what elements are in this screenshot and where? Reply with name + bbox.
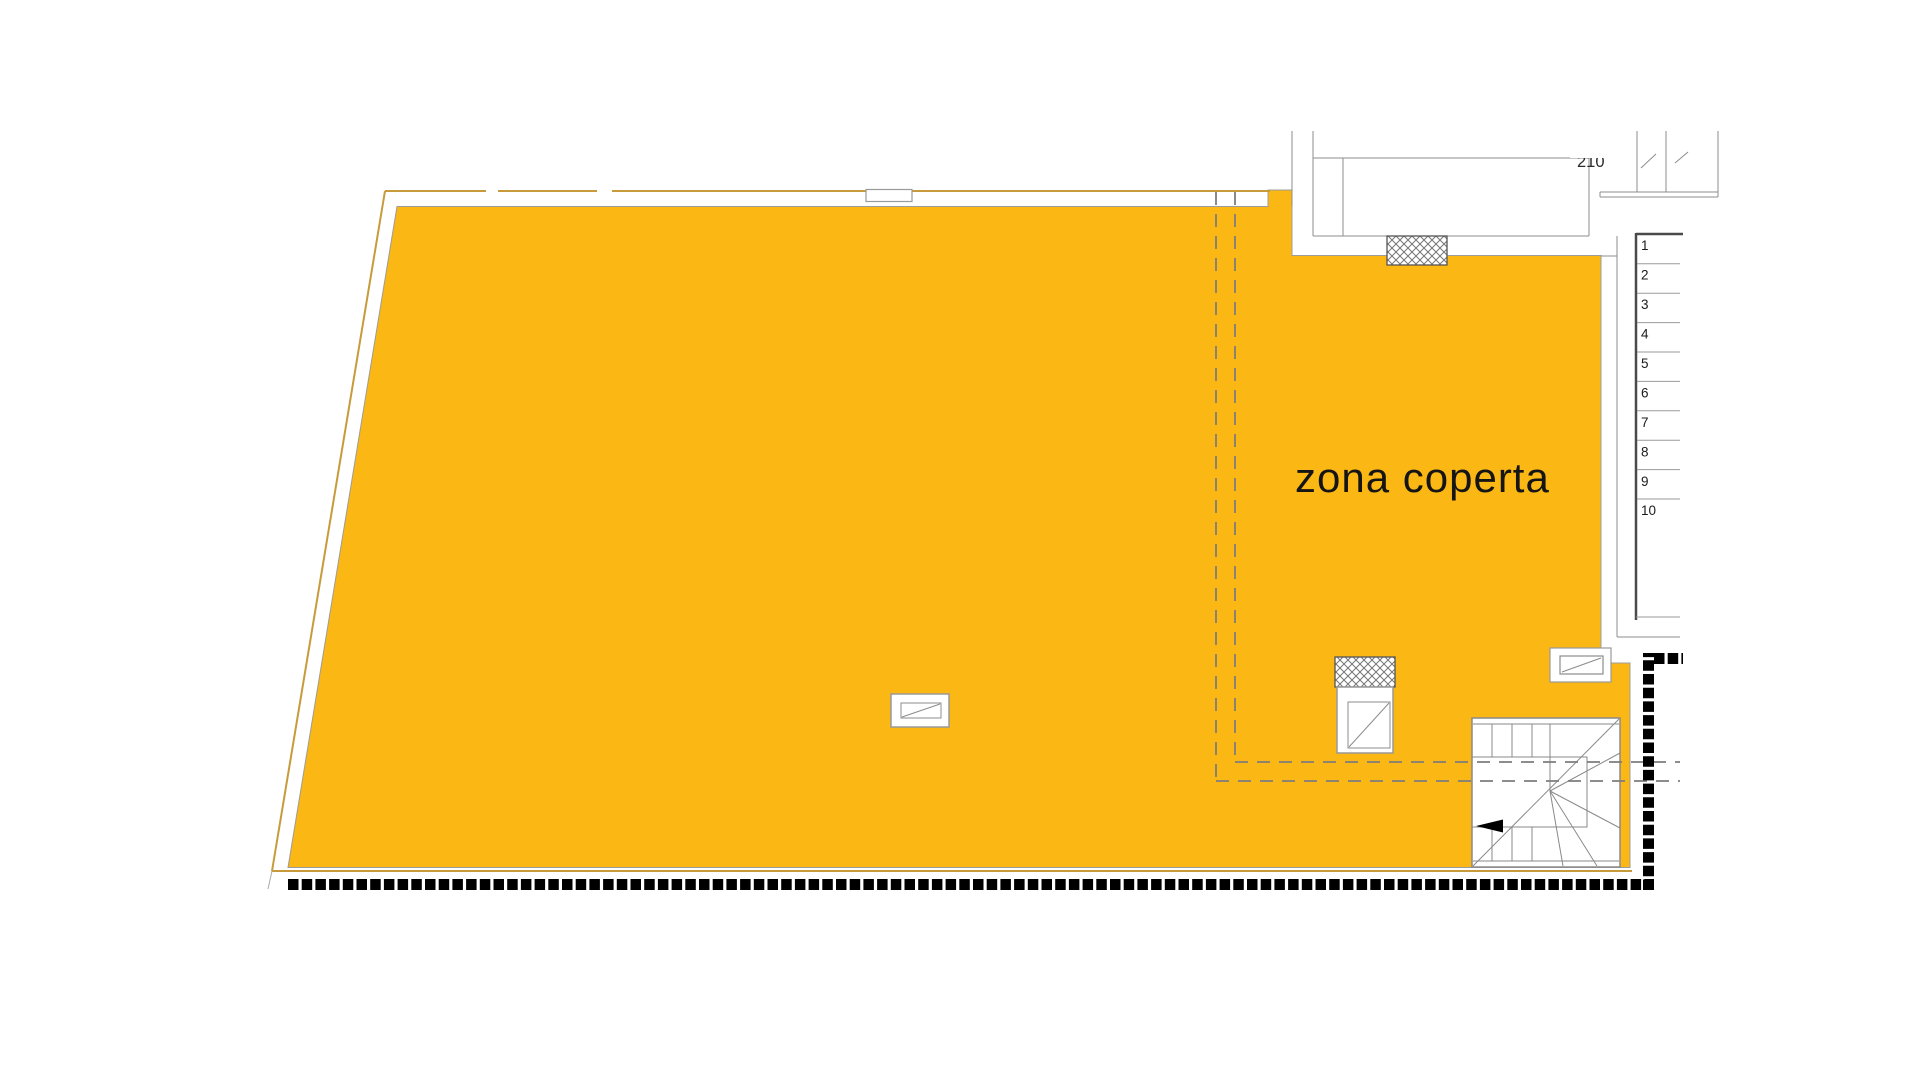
chimney-skylight bbox=[1335, 657, 1395, 753]
floor-plan: 210 1 2 3 4 5 6 7 8 bbox=[0, 0, 1920, 1080]
floor-plan-canvas: 210 1 2 3 4 5 6 7 8 bbox=[0, 0, 1920, 1080]
stairwell bbox=[1472, 718, 1620, 867]
edge-roof-window bbox=[1550, 648, 1611, 682]
zone-label: zona coperta bbox=[1295, 454, 1550, 501]
step-number: 8 bbox=[1641, 445, 1649, 460]
terrace-fill bbox=[288, 190, 1630, 868]
viewport-clip-mask bbox=[1570, 136, 1614, 158]
step-table: 1 2 3 4 5 6 7 8 9 10 bbox=[1601, 233, 1683, 637]
wall-opening-bracket bbox=[866, 190, 912, 202]
terrace-area bbox=[288, 190, 1630, 868]
step-number: 3 bbox=[1641, 297, 1649, 312]
step-number: 5 bbox=[1641, 356, 1649, 371]
step-number: 9 bbox=[1641, 474, 1649, 489]
chimney-hatch bbox=[1335, 657, 1395, 687]
step-number: 4 bbox=[1641, 327, 1649, 342]
step-number: 2 bbox=[1641, 268, 1649, 283]
step-number: 10 bbox=[1641, 503, 1656, 518]
adjacent-building-outline bbox=[1292, 131, 1718, 236]
step-number: 1 bbox=[1641, 238, 1649, 253]
chimney-hatch bbox=[1387, 236, 1447, 265]
step-number: 7 bbox=[1641, 415, 1649, 430]
step-number: 6 bbox=[1641, 386, 1649, 401]
roof-window bbox=[891, 694, 949, 727]
